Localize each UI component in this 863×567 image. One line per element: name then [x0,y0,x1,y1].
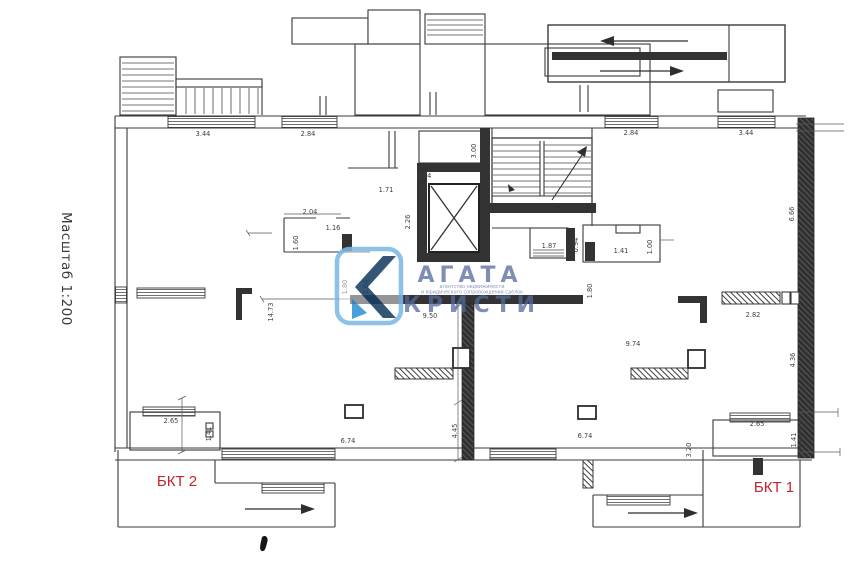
elevator-core [348,128,490,262]
central-vertical-wall [462,304,474,460]
window-band [490,449,556,459]
partition-wall [631,368,688,379]
dim-label: 2.84 [624,129,639,137]
dim-label: 0.94 [572,238,580,253]
window-band [282,117,337,128]
dim-label: 6.74 [341,437,356,445]
dim-label: 3.74 [417,172,432,180]
exterior-stair-top-left [120,57,262,115]
dim-label: 1.60 [292,236,300,251]
window-band [605,117,658,128]
bkt2-label: БКТ 2 [157,473,197,490]
window-band [222,449,335,459]
agency-logo [337,249,401,323]
floor-plan-drawing: 3.44 2.84 2.84 3.44 3.74 1.71 2.26 3.00 … [0,0,863,567]
dim-label: 2.65 [164,417,179,425]
dim-label: 4.36 [789,353,797,368]
column [345,405,363,418]
dim-label: 7.54 [466,387,474,402]
dim-label: 1.00 [646,240,654,255]
right-interior [631,292,799,379]
right-exterior-wall [798,118,814,458]
dim-label: 2.04 [303,208,318,216]
window-band [262,483,324,493]
dim-label: 3.00 [470,144,478,159]
column [578,406,596,419]
partition-wall [137,288,205,298]
room-left-of-core [246,214,370,252]
dim-label: 9.74 [626,340,641,348]
partition-wall [583,460,593,488]
entrance-ramp-top-right [548,25,785,112]
dim-label: 14.73 [267,303,275,322]
ramp-arrow-bottom-right [628,508,698,518]
bkt1-label: БКТ 1 [754,479,794,496]
dim-label: 3.20 [685,443,693,458]
bkt1-block [583,413,800,527]
partition-wall [722,292,780,304]
dim-label: 6.66 [788,207,796,222]
dim-label: 3.44 [196,130,211,138]
watermark-brand-line2: КРИСТИ [403,293,541,318]
scanned-floor-plan-page: 3.44 2.84 2.84 3.44 3.74 1.71 2.26 3.00 … [0,0,863,567]
stairwell [484,128,596,226]
dim-label: 1.16 [326,224,341,232]
window-band [143,407,195,416]
ramp-arrow-right [600,66,684,76]
dim-label: 2.65 [750,420,765,428]
dim-label: 1.87 [542,242,557,250]
dim-label: 2.84 [301,130,316,138]
left-interior [137,288,252,320]
dim-label: 1.41 [205,427,213,442]
dim-label: 2.82 [746,311,761,319]
unit-labels: БКТ 2 БКТ 1 [157,473,794,496]
dim-label: 1.41 [790,433,798,448]
window-band [607,495,670,505]
window-band [718,117,775,128]
elevator-shaft [429,184,479,252]
central-walls [260,295,583,462]
window-band [116,287,127,303]
partition-wall [395,368,453,379]
window-band [168,117,255,128]
dim-label: 4.45 [451,424,459,439]
dim-label: 1.71 [379,186,394,194]
entrance-vestibules-top-center [292,10,650,115]
dim-label: 6.74 [578,432,593,440]
dim-label: 1.80 [586,284,594,299]
scale-note: Масштаб 1:200 [58,212,74,326]
ramp-arrow-bottom-left [245,504,315,514]
watermark-small-line1: агентство недвижимости [440,285,505,290]
ink-mark [260,536,268,551]
dim-label: 3.44 [739,129,754,137]
dim-label: 1.41 [614,247,629,255]
dim-label: 2.26 [404,215,412,230]
bkt2-block [118,396,335,551]
